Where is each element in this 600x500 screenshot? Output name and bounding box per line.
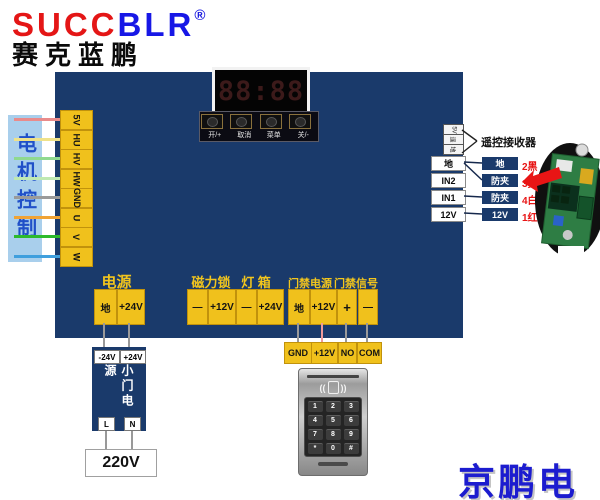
terminal-hu-label: HU	[72, 134, 82, 147]
hookup-wire-pink	[321, 323, 323, 342]
registered-trademark-icon: ®	[194, 7, 208, 24]
lightbox-terminal-24v-label: +24V	[259, 302, 283, 313]
power-terminal-24v: +24V	[117, 289, 145, 325]
maglock-terminal-12v: +12V	[208, 289, 236, 325]
hookup-wire	[103, 323, 105, 350]
terminal-gnd: GND	[60, 188, 93, 208]
brand-logo: SUCCBLR® 赛克蓝鹏	[12, 8, 208, 69]
brand-logo-blr: BLR	[118, 6, 195, 43]
terminal-5v-label: 5V	[71, 114, 81, 125]
key-5: 5	[326, 415, 341, 426]
terminal-hu: HU	[60, 130, 93, 150]
hookup-wire	[105, 429, 107, 449]
cancel-button-label: 取消	[230, 130, 258, 140]
access-signal-terminal-plus-label: +	[343, 300, 351, 315]
reader-terminal-no-label: NO	[341, 348, 355, 358]
menu-button: 菜单	[260, 114, 288, 140]
watermark-text: 京鹏电子	[458, 452, 600, 500]
terminal-u-label: U	[72, 215, 82, 222]
lightbox-terminal-24v: +24V	[257, 289, 284, 325]
key-8: 8	[326, 429, 341, 440]
psu-input-pos24-label: +24V	[124, 353, 143, 362]
hookup-wire	[131, 429, 133, 449]
psu-input-neg24-label: -24V	[99, 353, 116, 362]
keypad-brand-strip	[318, 462, 348, 466]
terminal-w-label: W	[72, 253, 82, 262]
power-terminal-gnd: 地	[94, 289, 117, 325]
wave-left: ((	[320, 383, 326, 393]
brand-logo-latin: SUCCBLR®	[12, 8, 208, 41]
hookup-wire	[128, 323, 130, 350]
right-side-wiring-graphic	[420, 100, 600, 270]
terminal-gnd-label: GND	[72, 188, 82, 208]
hookup-wire	[297, 323, 299, 342]
access-signal-terminal-plus: +	[337, 289, 357, 325]
key-2: 2	[326, 401, 341, 412]
wire-hw	[14, 177, 60, 180]
wire-hv	[14, 157, 60, 160]
open-plus-button-label: 开/+	[201, 130, 229, 140]
close-minus-button-label: 关/-	[289, 130, 317, 140]
terminal-hv: HV	[60, 149, 93, 169]
wave-right: ))	[341, 383, 347, 393]
mains-220v-label: 220V	[102, 454, 139, 472]
psu-name-label: 小门电源	[102, 364, 136, 414]
terminal-v-label: V	[71, 234, 81, 240]
seven-segment-display: 88:88	[212, 67, 310, 115]
reader-terminal-12v-label: +12V	[314, 348, 335, 358]
wire-hu	[14, 138, 60, 141]
terminal-hw: HW	[60, 169, 93, 189]
keypad-panel: 1 2 3 4 5 6 7 8 9 * 0 #	[304, 397, 362, 457]
wire-gnd	[14, 196, 60, 199]
key-9: 9	[344, 429, 359, 440]
card-icon	[328, 381, 339, 394]
key-4: 4	[308, 415, 323, 426]
cancel-button: 取消	[230, 114, 258, 140]
key-3: 3	[344, 401, 359, 412]
power-terminal-24v-label: +24V	[119, 302, 143, 313]
terminal-hw-label: HW	[72, 172, 82, 187]
access-power-terminal-12v: +12V	[310, 289, 337, 325]
psu-output-l-label: L	[104, 420, 109, 429]
psu-input-neg24: -24V	[94, 350, 120, 364]
lightbox-terminal-minus: —	[236, 289, 257, 325]
psu-name: 小门电源	[92, 364, 146, 414]
menu-button-cap	[260, 114, 282, 129]
access-power-terminal-12v-label: +12V	[312, 302, 336, 313]
reader-terminal-com-label: COM	[359, 348, 380, 358]
lightbox-terminal-minus-label: —	[242, 302, 252, 313]
button-panel: 开/+ 取消 菜单 关/-	[199, 111, 319, 142]
receiver-bracket-lines	[462, 130, 477, 153]
terminal-v: V	[60, 227, 93, 247]
key-0: 0	[326, 443, 341, 454]
maglock-terminal-12v-label: +12V	[210, 302, 234, 313]
wire-v	[14, 235, 60, 238]
access-power-terminal-gnd-label: 地	[294, 300, 304, 315]
keypad-title-strip	[307, 375, 359, 378]
brand-logo-chinese: 赛克蓝鹏	[12, 43, 208, 69]
hookup-wire	[345, 323, 347, 342]
close-minus-button: 关/-	[289, 114, 317, 140]
access-signal-terminal-minus: —	[358, 289, 378, 325]
open-plus-button: 开/+	[201, 114, 229, 140]
motor-control-label: 电机控制	[11, 133, 40, 245]
io-link-lines	[464, 162, 482, 214]
psu-input-pos24: +24V	[120, 350, 146, 364]
terminal-5v: 5V	[60, 110, 93, 130]
key-6: 6	[344, 415, 359, 426]
access-power-terminal-gnd: 地	[288, 289, 310, 325]
terminal-hv-label: HV	[71, 153, 81, 166]
key-hash: #	[344, 443, 359, 454]
key-7: 7	[308, 429, 323, 440]
menu-button-label: 菜单	[260, 130, 288, 140]
access-keypad: (()) 1 2 3 4 5 6 7 8 9 * 0 #	[298, 368, 368, 476]
power-terminal-gnd-label: 地	[101, 300, 111, 315]
brand-logo-succ: SUCC	[12, 6, 118, 43]
wire-5v	[14, 118, 60, 121]
reader-terminal-com: COM	[357, 342, 382, 364]
reader-terminal-gnd: GND	[284, 342, 312, 364]
terminal-u: U	[60, 208, 93, 228]
anti-pinch-sensor-photo	[535, 143, 600, 262]
terminal-w: W	[60, 247, 93, 267]
maglock-terminal-minus: —	[187, 289, 208, 325]
open-plus-button-cap	[201, 114, 223, 129]
sensor-housing-notch	[558, 246, 584, 262]
hookup-wire	[366, 323, 368, 342]
reader-terminal-12v: +12V	[311, 342, 338, 364]
psu-output-n-label: N	[130, 420, 136, 429]
wiring-diagram: SUCCBLR® 赛克蓝鹏 88:88 开/+ 取消 菜单 关/- 电机控制 5…	[0, 0, 600, 500]
wire-w	[14, 255, 60, 258]
sensor-screw	[576, 144, 588, 156]
key-1: 1	[308, 401, 323, 412]
psu-output-l: L	[98, 417, 115, 431]
close-minus-button-cap	[289, 114, 311, 129]
mains-220v-box: 220V	[85, 449, 157, 477]
psu-output-n: N	[124, 417, 141, 431]
reader-terminal-gnd-label: GND	[288, 348, 308, 358]
reader-terminal-no: NO	[338, 342, 357, 364]
cancel-button-cap	[230, 114, 252, 129]
rfid-wave-icon: (())	[299, 381, 367, 394]
wire-u	[14, 216, 60, 219]
key-star: *	[308, 443, 323, 454]
display-digits: 88:88	[218, 76, 304, 107]
access-signal-terminal-minus-label: —	[363, 302, 373, 313]
maglock-terminal-minus-label: —	[193, 302, 203, 313]
